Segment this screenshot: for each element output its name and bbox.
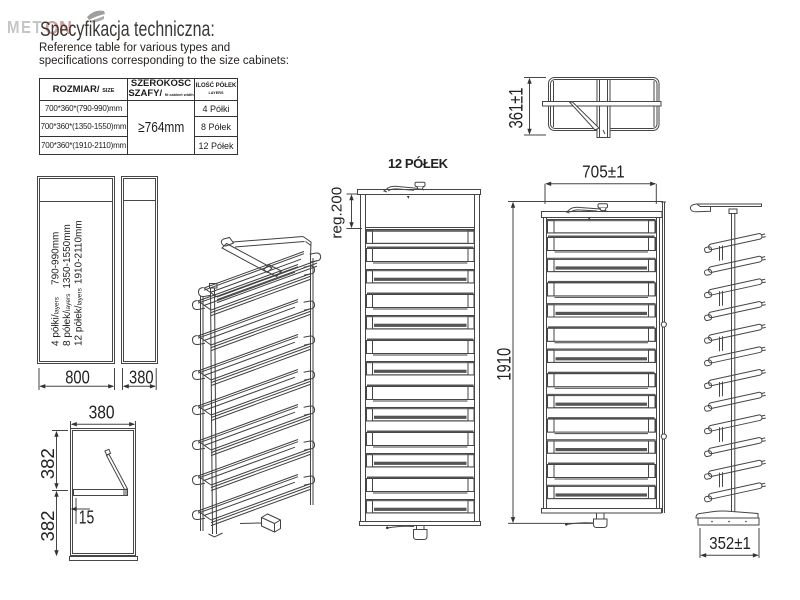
svg-text:1910: 1910	[494, 348, 515, 381]
svg-text:361±1: 361±1	[506, 88, 527, 129]
svg-text:800: 800	[65, 366, 90, 387]
svg-text:4 półki/layers790-990mm: 4 półki/layers790-990mm	[51, 232, 62, 346]
svg-text:reg.200: reg.200	[329, 187, 346, 239]
svg-text:380: 380	[129, 366, 154, 387]
svg-text:352±1: 352±1	[709, 533, 751, 553]
svg-text:380: 380	[89, 401, 115, 422]
svg-text:8 półek/layers1350-1550mm: 8 półek/layers1350-1550mm	[62, 224, 73, 346]
svg-text:15: 15	[79, 506, 95, 527]
svg-text:382: 382	[37, 511, 58, 542]
svg-text:12 półek/layers1910-2110mm: 12 półek/layers1910-2110mm	[74, 220, 85, 346]
svg-text:705±1: 705±1	[582, 162, 625, 182]
svg-text:382: 382	[37, 448, 58, 479]
